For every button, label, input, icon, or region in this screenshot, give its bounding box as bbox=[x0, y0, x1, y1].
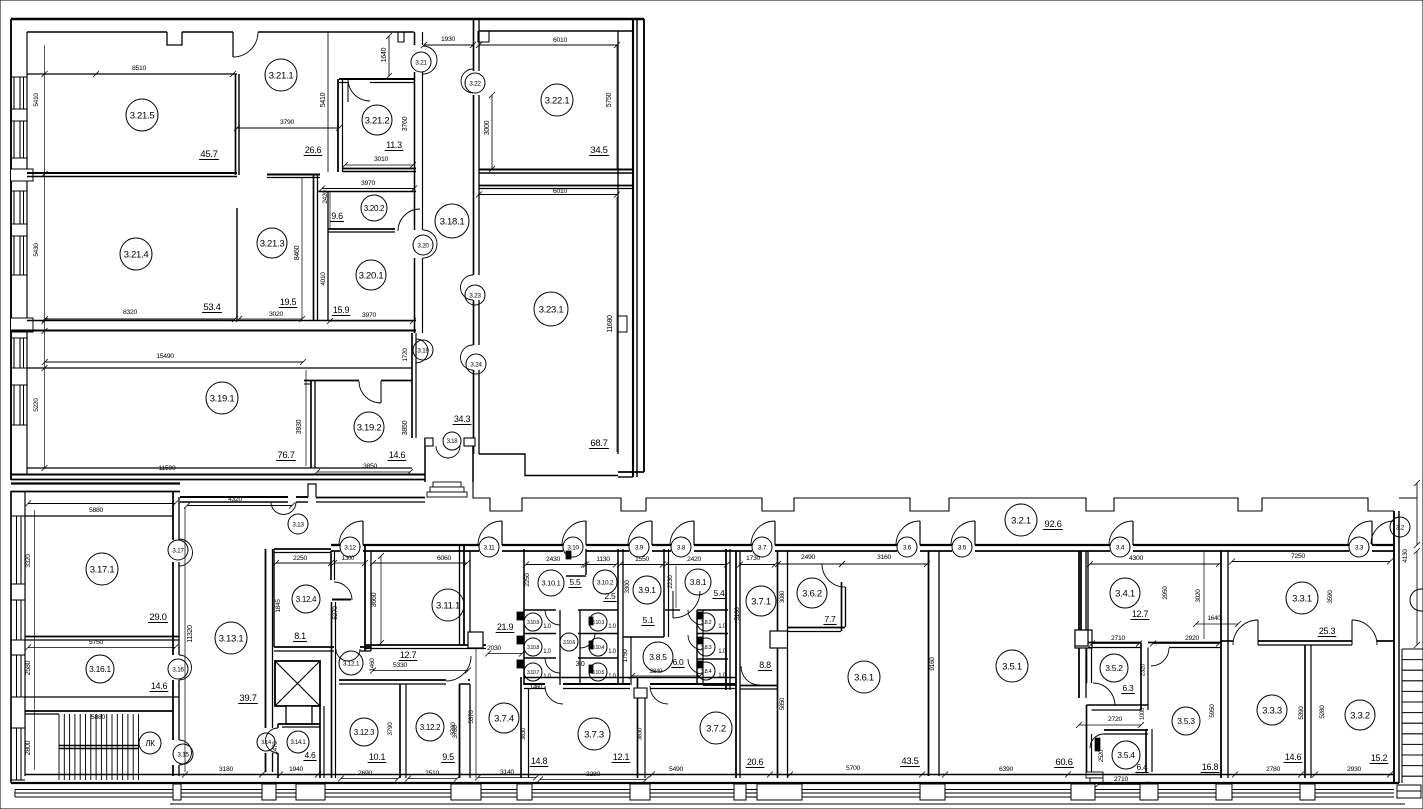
svg-text:45.7: 45.7 bbox=[200, 149, 217, 160]
svg-text:2510: 2510 bbox=[425, 770, 439, 777]
svg-text:3.12.4: 3.12.4 bbox=[296, 595, 317, 604]
svg-text:11320: 11320 bbox=[187, 625, 194, 643]
svg-text:3.3.2: 3.3.2 bbox=[1350, 710, 1370, 721]
svg-text:1.0: 1.0 bbox=[543, 624, 551, 630]
svg-text:1940: 1940 bbox=[289, 766, 303, 773]
svg-text:1550: 1550 bbox=[635, 556, 649, 563]
svg-text:3.5: 3.5 bbox=[958, 544, 967, 551]
svg-text:3.13.1: 3.13.1 bbox=[219, 633, 244, 644]
svg-text:3.19: 3.19 bbox=[417, 347, 429, 354]
svg-text:3020: 3020 bbox=[269, 311, 283, 318]
svg-text:3.7.3: 3.7.3 bbox=[584, 729, 604, 740]
svg-text:8.1: 8.1 bbox=[294, 631, 306, 641]
svg-text:3830: 3830 bbox=[521, 727, 527, 740]
svg-text:26.6: 26.6 bbox=[305, 145, 322, 155]
svg-text:3.20.1: 3.20.1 bbox=[359, 270, 384, 281]
svg-text:6010: 6010 bbox=[553, 188, 567, 195]
svg-text:3.21.3: 3.21.3 bbox=[260, 238, 285, 249]
svg-text:1930: 1930 bbox=[441, 36, 455, 43]
svg-text:43.5: 43.5 bbox=[901, 756, 918, 767]
svg-text:3.17: 3.17 bbox=[172, 547, 184, 554]
svg-text:3.13: 3.13 bbox=[292, 521, 304, 528]
svg-text:6.3: 6.3 bbox=[1123, 683, 1134, 693]
svg-text:6.0: 6.0 bbox=[673, 657, 684, 667]
svg-text:2030: 2030 bbox=[487, 645, 501, 652]
svg-text:3660: 3660 bbox=[371, 592, 378, 607]
svg-text:3590: 3590 bbox=[1327, 590, 1334, 604]
svg-text:14.6: 14.6 bbox=[151, 681, 168, 691]
svg-text:1300: 1300 bbox=[342, 556, 355, 562]
svg-text:9160: 9160 bbox=[929, 657, 936, 671]
svg-text:3.11: 3.11 bbox=[484, 544, 496, 551]
svg-text:1460: 1460 bbox=[530, 685, 543, 691]
svg-text:6390: 6390 bbox=[999, 766, 1013, 773]
svg-text:5410: 5410 bbox=[33, 93, 40, 107]
svg-text:1.0: 1.0 bbox=[543, 674, 551, 680]
svg-text:5430: 5430 bbox=[33, 243, 40, 257]
svg-text:3.7.2: 3.7.2 bbox=[706, 723, 726, 734]
svg-text:2780: 2780 bbox=[1266, 766, 1280, 773]
svg-text:5330: 5330 bbox=[393, 662, 407, 669]
svg-text:3.3.1: 3.3.1 bbox=[1292, 593, 1312, 604]
svg-text:2840: 2840 bbox=[650, 669, 663, 675]
svg-text:3850: 3850 bbox=[402, 420, 409, 435]
svg-text:3.21.4: 3.21.4 bbox=[124, 249, 149, 260]
svg-text:3.15: 3.15 bbox=[177, 751, 189, 758]
svg-text:3.11.1: 3.11.1 bbox=[436, 600, 460, 611]
svg-text:5880: 5880 bbox=[91, 714, 105, 721]
svg-text:3.14.1: 3.14.1 bbox=[291, 740, 307, 746]
svg-text:3.10.3: 3.10.3 bbox=[592, 620, 605, 626]
svg-text:3.3.3: 3.3.3 bbox=[1262, 705, 1282, 716]
svg-text:1130: 1130 bbox=[596, 556, 610, 563]
svg-text:5490: 5490 bbox=[669, 766, 683, 773]
svg-text:3970: 3970 bbox=[362, 312, 376, 319]
svg-text:1730: 1730 bbox=[746, 555, 760, 562]
svg-text:2710: 2710 bbox=[1111, 635, 1125, 642]
svg-text:2230: 2230 bbox=[667, 575, 674, 589]
svg-text:3.6: 3.6 bbox=[903, 544, 912, 551]
svg-text:92.6: 92.6 bbox=[1044, 519, 1061, 530]
svg-text:3.10.8: 3.10.8 bbox=[527, 645, 540, 651]
svg-text:4130: 4130 bbox=[1402, 549, 1409, 563]
svg-text:3970: 3970 bbox=[361, 180, 375, 187]
svg-text:25.3: 25.3 bbox=[1319, 626, 1336, 636]
svg-text:2720: 2720 bbox=[1108, 716, 1122, 723]
svg-text:3.23.1: 3.23.1 bbox=[539, 304, 564, 315]
svg-text:3790: 3790 bbox=[387, 722, 394, 736]
svg-text:2930: 2930 bbox=[1347, 766, 1361, 773]
svg-text:11.3: 11.3 bbox=[386, 140, 402, 150]
svg-text:5700: 5700 bbox=[846, 765, 860, 772]
svg-text:8.8: 8.8 bbox=[759, 660, 771, 670]
svg-text:3080: 3080 bbox=[780, 590, 786, 603]
svg-text:15.2: 15.2 bbox=[1371, 753, 1388, 763]
svg-text:3.5.2: 3.5.2 bbox=[1105, 663, 1123, 673]
svg-text:3.8: 3.8 bbox=[677, 544, 686, 551]
svg-text:3780: 3780 bbox=[452, 725, 459, 739]
svg-text:4320: 4320 bbox=[228, 496, 242, 503]
svg-text:5880: 5880 bbox=[89, 507, 103, 514]
svg-text:53.4: 53.4 bbox=[203, 302, 220, 313]
svg-text:3.23: 3.23 bbox=[469, 292, 481, 299]
svg-text:3850: 3850 bbox=[363, 463, 377, 470]
svg-text:3.21: 3.21 bbox=[415, 59, 427, 66]
svg-text:3.12: 3.12 bbox=[344, 544, 356, 551]
svg-text:5370: 5370 bbox=[468, 710, 475, 724]
svg-text:2690: 2690 bbox=[358, 770, 372, 777]
svg-text:3.9.1: 3.9.1 bbox=[638, 585, 656, 595]
svg-text:3.5.3: 3.5.3 bbox=[1177, 716, 1195, 726]
svg-text:5.4: 5.4 bbox=[714, 588, 725, 598]
svg-text:5.5: 5.5 bbox=[570, 577, 581, 587]
svg-text:19.5: 19.5 bbox=[280, 297, 297, 307]
svg-text:3320: 3320 bbox=[25, 554, 32, 568]
svg-text:10.1: 10.1 bbox=[369, 752, 386, 762]
svg-text:3.3: 3.3 bbox=[1355, 544, 1364, 551]
svg-text:3.16.1: 3.16.1 bbox=[89, 664, 111, 674]
svg-text:3930: 3930 bbox=[296, 419, 303, 434]
svg-text:3.16: 3.16 bbox=[172, 666, 184, 673]
svg-text:2950: 2950 bbox=[1162, 586, 1169, 600]
svg-text:34.5: 34.5 bbox=[590, 145, 607, 156]
svg-text:12.1: 12.1 bbox=[613, 752, 630, 762]
svg-text:8320: 8320 bbox=[123, 309, 137, 316]
svg-text:9.5: 9.5 bbox=[442, 752, 454, 762]
svg-text:3.4: 3.4 bbox=[1116, 544, 1125, 551]
svg-text:5750: 5750 bbox=[606, 92, 613, 107]
svg-text:3.12.3: 3.12.3 bbox=[354, 728, 375, 737]
svg-text:3.12.1: 3.12.1 bbox=[343, 660, 360, 667]
svg-text:3.4.1: 3.4.1 bbox=[1115, 588, 1135, 599]
svg-text:3.10.4: 3.10.4 bbox=[592, 645, 605, 651]
svg-text:3.7: 3.7 bbox=[758, 544, 767, 551]
svg-text:1720: 1720 bbox=[402, 348, 409, 362]
svg-text:3.8.1: 3.8.1 bbox=[690, 578, 707, 587]
svg-text:3160: 3160 bbox=[877, 554, 891, 561]
svg-text:14.6: 14.6 bbox=[389, 450, 406, 460]
svg-text:1.0: 1.0 bbox=[608, 674, 616, 680]
svg-text:2470: 2470 bbox=[272, 741, 279, 755]
svg-text:3.7.1: 3.7.1 bbox=[751, 596, 771, 607]
svg-text:2920: 2920 bbox=[1185, 635, 1199, 642]
svg-text:5850: 5850 bbox=[780, 697, 786, 710]
svg-text:3.19.1: 3.19.1 bbox=[210, 393, 235, 404]
svg-text:3.20: 3.20 bbox=[417, 242, 429, 249]
svg-text:5950: 5950 bbox=[1209, 704, 1216, 718]
svg-text:7.7: 7.7 bbox=[825, 614, 836, 624]
svg-text:3.5.4: 3.5.4 bbox=[1117, 750, 1135, 760]
svg-text:3.2.1: 3.2.1 bbox=[1011, 515, 1031, 526]
svg-text:3.18: 3.18 bbox=[447, 439, 458, 445]
svg-text:3.0: 3.0 bbox=[576, 661, 585, 668]
svg-text:1845: 1845 bbox=[275, 599, 282, 613]
svg-text:3020: 3020 bbox=[1195, 589, 1202, 603]
svg-text:6060: 6060 bbox=[437, 555, 451, 562]
svg-text:3010: 3010 bbox=[374, 156, 388, 163]
svg-text:3.6.2: 3.6.2 bbox=[802, 588, 822, 599]
svg-text:2490: 2490 bbox=[801, 554, 815, 561]
svg-text:5750: 5750 bbox=[89, 639, 103, 646]
svg-text:1.0: 1.0 bbox=[608, 649, 616, 655]
svg-text:3.9: 3.9 bbox=[635, 544, 644, 551]
svg-text:68.7: 68.7 bbox=[590, 438, 607, 449]
svg-text:12.7: 12.7 bbox=[1132, 609, 1149, 619]
svg-text:2800: 2800 bbox=[25, 740, 32, 755]
svg-text:4300: 4300 bbox=[1129, 555, 1143, 562]
svg-text:2580: 2580 bbox=[25, 660, 32, 675]
svg-text:3.20.2: 3.20.2 bbox=[364, 204, 385, 213]
svg-text:2430: 2430 bbox=[546, 556, 560, 563]
svg-text:1640: 1640 bbox=[1207, 615, 1221, 622]
svg-text:2250: 2250 bbox=[524, 573, 531, 587]
svg-text:16.8: 16.8 bbox=[1202, 762, 1219, 772]
svg-text:60.6: 60.6 bbox=[1055, 757, 1072, 768]
svg-text:3.8.5: 3.8.5 bbox=[649, 652, 667, 662]
svg-text:3.21.2: 3.21.2 bbox=[365, 115, 390, 126]
svg-text:3830: 3830 bbox=[638, 727, 644, 740]
svg-text:3.5.1: 3.5.1 bbox=[1002, 661, 1022, 672]
svg-text:3000: 3000 bbox=[484, 120, 491, 135]
svg-text:ЛК: ЛК bbox=[145, 739, 155, 748]
svg-text:5390: 5390 bbox=[1298, 706, 1305, 720]
svg-text:3.21.5: 3.21.5 bbox=[130, 110, 155, 121]
svg-text:3.10.2: 3.10.2 bbox=[597, 579, 614, 586]
svg-text:3.10.5: 3.10.5 bbox=[592, 670, 605, 676]
svg-text:3.10.1: 3.10.1 bbox=[541, 579, 560, 588]
svg-text:2.5: 2.5 bbox=[605, 591, 616, 601]
svg-text:3180: 3180 bbox=[219, 766, 233, 773]
svg-text:5.1: 5.1 bbox=[643, 615, 654, 625]
svg-text:2250: 2250 bbox=[293, 555, 307, 562]
svg-text:9.6: 9.6 bbox=[331, 211, 343, 221]
svg-text:3.24: 3.24 bbox=[470, 361, 482, 368]
svg-text:1.0: 1.0 bbox=[608, 624, 616, 630]
svg-text:8510: 8510 bbox=[132, 65, 146, 72]
svg-text:3.2: 3.2 bbox=[1396, 524, 1405, 531]
svg-text:7250: 7250 bbox=[1291, 553, 1305, 560]
svg-text:34.3: 34.3 bbox=[454, 414, 471, 424]
svg-text:5280: 5280 bbox=[1319, 705, 1326, 719]
svg-text:3.12.2: 3.12.2 bbox=[420, 723, 441, 732]
svg-text:15.9: 15.9 bbox=[333, 305, 350, 315]
svg-text:14.6: 14.6 bbox=[1285, 752, 1302, 762]
svg-text:21.9: 21.9 bbox=[497, 622, 514, 632]
svg-text:3.18.1: 3.18.1 bbox=[440, 216, 465, 227]
svg-text:14.8: 14.8 bbox=[531, 756, 548, 766]
svg-text:5410: 5410 bbox=[320, 92, 327, 107]
svg-text:3.21.1: 3.21.1 bbox=[269, 70, 294, 81]
svg-text:39.7: 39.7 bbox=[239, 693, 256, 704]
svg-text:76.7: 76.7 bbox=[277, 450, 294, 461]
svg-text:4.6: 4.6 bbox=[305, 750, 316, 760]
svg-text:12.7: 12.7 bbox=[400, 650, 417, 660]
svg-text:2520: 2520 bbox=[1099, 749, 1105, 762]
svg-text:15490: 15490 bbox=[156, 353, 174, 360]
svg-text:3.17.1: 3.17.1 bbox=[90, 564, 115, 575]
svg-text:1.0: 1.0 bbox=[543, 649, 551, 655]
svg-text:3.14: 3.14 bbox=[261, 740, 271, 746]
svg-text:3.10.7: 3.10.7 bbox=[527, 670, 540, 676]
svg-text:3300: 3300 bbox=[624, 580, 631, 594]
svg-text:5220: 5220 bbox=[33, 398, 40, 412]
svg-text:3760: 3760 bbox=[402, 116, 409, 131]
svg-text:3.22: 3.22 bbox=[469, 80, 481, 87]
svg-text:3.6.1: 3.6.1 bbox=[854, 672, 874, 683]
svg-text:1750: 1750 bbox=[622, 649, 629, 663]
svg-text:3.7.4: 3.7.4 bbox=[494, 713, 514, 724]
svg-text:6010: 6010 bbox=[553, 37, 567, 44]
svg-text:11680: 11680 bbox=[607, 315, 614, 333]
svg-text:1640: 1640 bbox=[381, 47, 388, 62]
svg-text:3.10.9: 3.10.9 bbox=[527, 620, 540, 626]
svg-text:3.22.1: 3.22.1 bbox=[545, 95, 570, 106]
svg-text:3.19.2: 3.19.2 bbox=[357, 422, 382, 433]
svg-text:2420: 2420 bbox=[687, 556, 701, 563]
svg-text:8460: 8460 bbox=[294, 245, 301, 260]
svg-text:3790: 3790 bbox=[280, 119, 294, 126]
svg-text:20.6: 20.6 bbox=[747, 757, 764, 767]
svg-text:1460: 1460 bbox=[369, 658, 376, 672]
svg-text:3.10.6: 3.10.6 bbox=[563, 640, 576, 646]
svg-text:1000: 1000 bbox=[1140, 707, 1146, 720]
svg-text:3.10: 3.10 bbox=[567, 544, 579, 551]
svg-text:4010: 4010 bbox=[320, 272, 327, 286]
svg-text:29.0: 29.0 bbox=[149, 612, 166, 623]
